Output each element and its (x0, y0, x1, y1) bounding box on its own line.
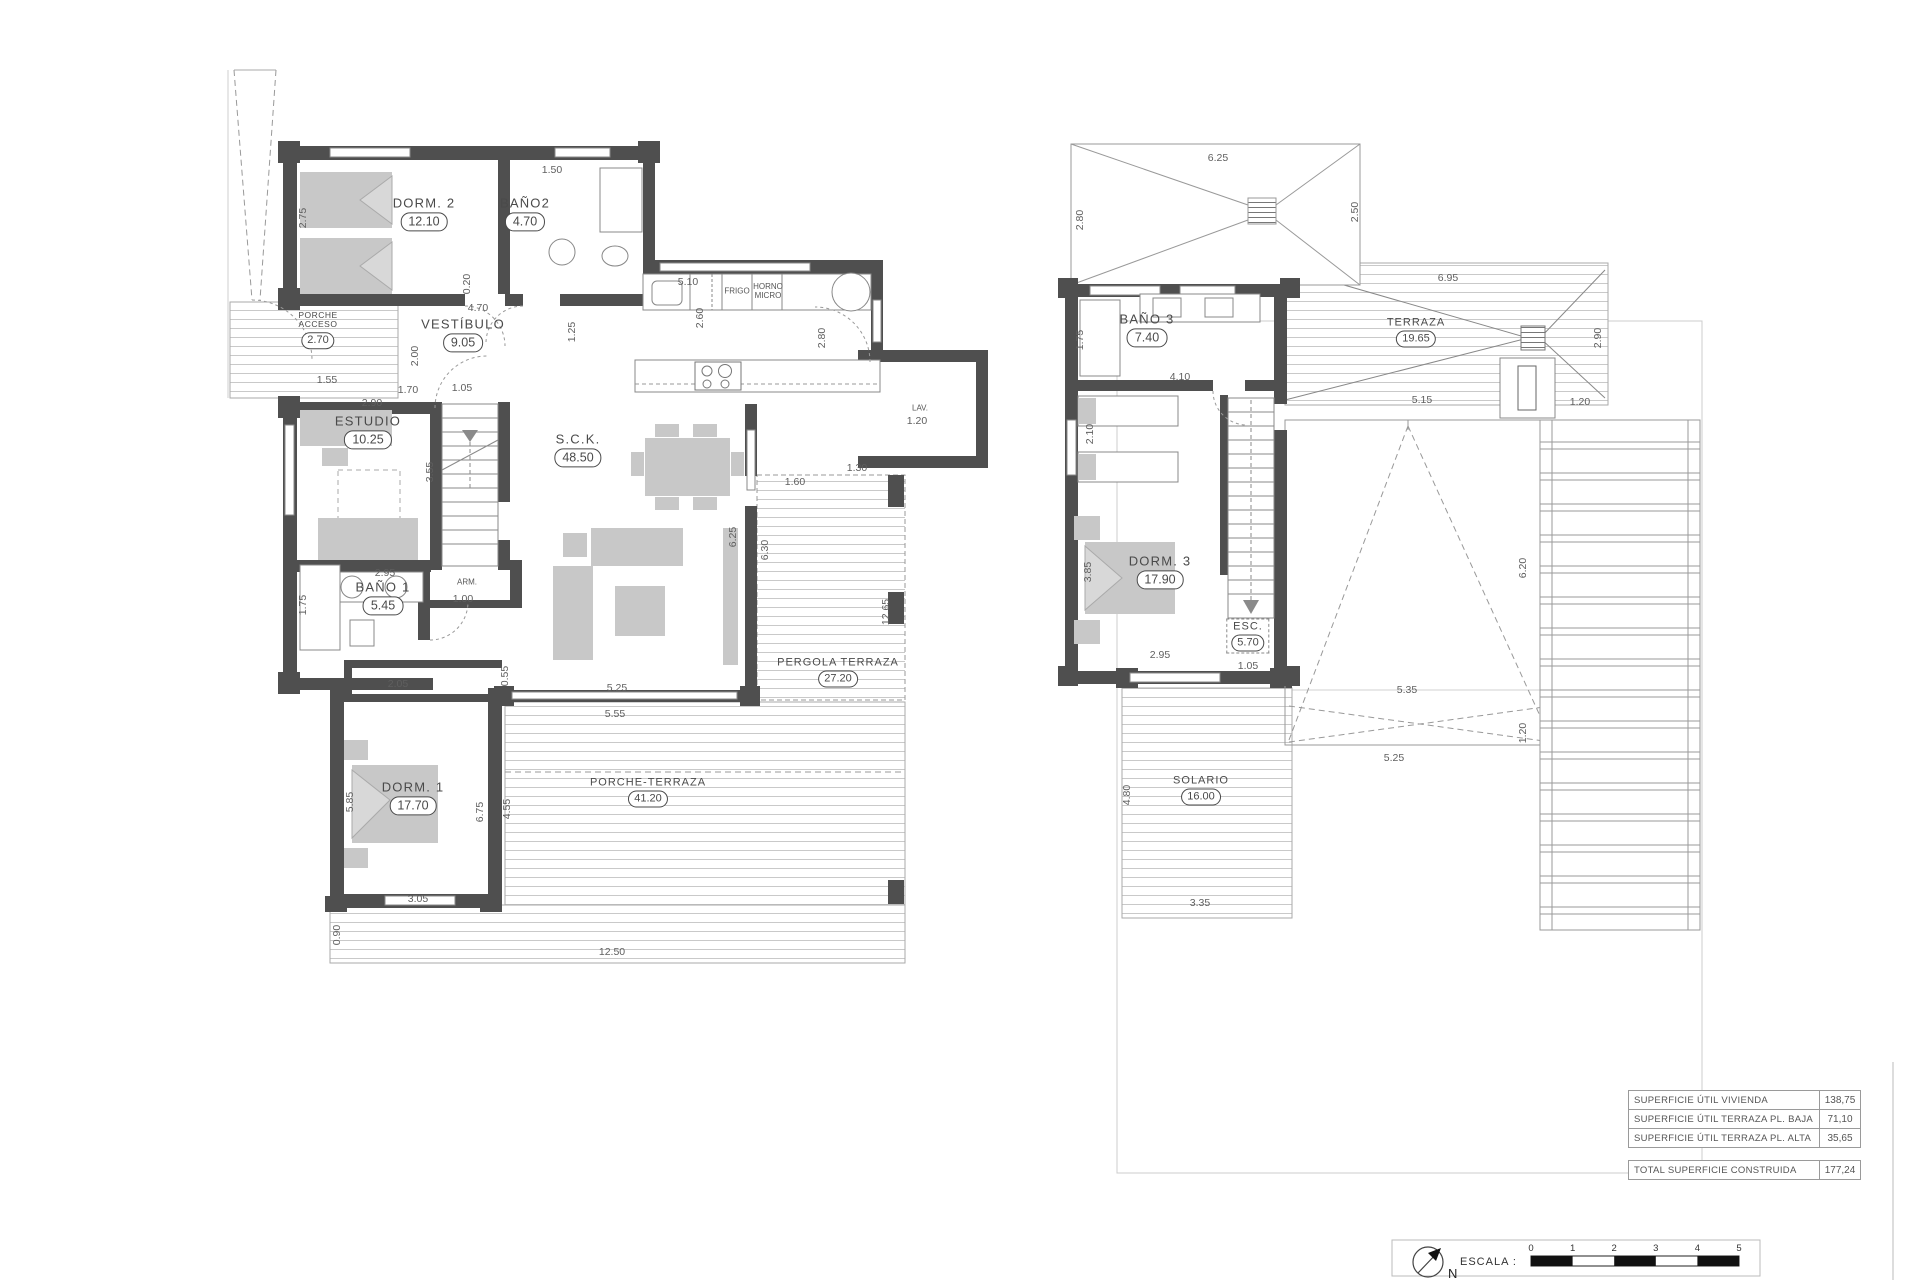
floorplan-drawing (0, 0, 1920, 1280)
room-label: ESC.5.70 (1226, 619, 1269, 654)
summary-total-row: TOTAL SUPERFICIE CONSTRUIDA177,24 (1628, 1160, 1861, 1180)
room-name: PERGOLA TERRAZA (777, 657, 899, 669)
room-area-badge: 17.90 (1136, 571, 1183, 590)
dimension-label: 1.70 (398, 384, 418, 396)
dimension-label: 2.80 (816, 328, 828, 348)
room-area-badge: 16.00 (1181, 789, 1221, 806)
room-name: BAÑO 1 (356, 580, 411, 594)
dimension-label: 3.35 (1190, 897, 1210, 909)
dimension-label: 6.25 (1208, 152, 1228, 164)
room-area-badge: 2.70 (301, 332, 334, 349)
room-area-badge: 19.65 (1396, 331, 1436, 348)
dimension-label: 3.55 (424, 462, 436, 482)
room-area-badge: 7.40 (1127, 329, 1167, 348)
floorplan-sheet: DORM. 212.10BAÑO24.70PORCHE ACCESO2.70VE… (0, 0, 1920, 1280)
room-label: BAÑO24.70 (500, 196, 550, 231)
dimension-label: 6.30 (759, 540, 771, 560)
scale-tick: 1 (1570, 1243, 1575, 1254)
upper-floor-decks (1116, 263, 1608, 918)
summary-row: SUPERFICIE ÚTIL TERRAZA PL. BAJA71,10 (1628, 1110, 1861, 1129)
dimension-label: 2.60 (694, 308, 706, 328)
room-label: BAÑO 37.40 (1120, 312, 1175, 347)
room-label: PORCHE ACCESO2.70 (298, 311, 337, 349)
summary-row-value: 138,75 (1820, 1091, 1860, 1109)
dimension-label: 4.70 (468, 302, 488, 314)
room-name: VESTÍBULO (421, 317, 505, 331)
dimension-label: 0.20 (461, 274, 473, 294)
dimension-label: 1.05 (1238, 660, 1258, 672)
scale-tick: 0 (1528, 1243, 1533, 1254)
room-area-badge: 48.50 (554, 449, 601, 468)
dimension-label: 1.20 (1517, 723, 1529, 743)
summary-row: SUPERFICIE ÚTIL VIVIENDA138,75 (1628, 1090, 1861, 1110)
room-area-badge: 27.20 (818, 671, 858, 688)
room-area-badge: 9.05 (443, 334, 483, 353)
room-name: DORM. 1 (382, 780, 445, 794)
room-label: PORCHE-TERRAZA41.20 (590, 777, 706, 808)
dimension-label: 6.95 (1438, 272, 1458, 284)
room-label: DORM. 317.90 (1129, 554, 1192, 589)
dimension-label: 2.10 (1084, 424, 1096, 444)
dimension-label: 5.25 (1384, 752, 1404, 764)
dimension-label: 2.80 (1074, 210, 1086, 230)
room-label: VESTÍBULO9.05 (421, 317, 505, 352)
room-name: SOLARIO (1173, 775, 1229, 787)
dimension-label: 2.75 (297, 208, 309, 228)
room-label: S.C.K.48.50 (554, 432, 601, 467)
summary-row-label: SUPERFICIE ÚTIL TERRAZA PL. ALTA (1629, 1129, 1820, 1147)
dimension-label: 6.75 (474, 802, 486, 822)
room-label: DORM. 212.10 (393, 196, 456, 231)
dimension-label: 0.55 (499, 666, 511, 686)
room-area-badge: 17.70 (389, 797, 436, 816)
scale-tick: 2 (1612, 1243, 1617, 1254)
dimension-label: 5.55 (605, 708, 625, 720)
dimension-label: 5.35 (1397, 684, 1417, 696)
room-name: BAÑO2 (500, 196, 550, 210)
dimension-label: 1.75 (1074, 330, 1086, 350)
room-label: PERGOLA TERRAZA27.20 (777, 657, 899, 688)
dimension-label: 2.90 (1592, 328, 1604, 348)
dimension-label: 5.25 (607, 682, 627, 694)
room-name: PORCHE-TERRAZA (590, 777, 706, 789)
dimension-label: 5.85 (344, 792, 356, 812)
room-name: S.C.K. (554, 432, 601, 446)
summary-row-label: SUPERFICIE ÚTIL VIVIENDA (1629, 1091, 1820, 1109)
summary-row: SUPERFICIE ÚTIL TERRAZA PL. ALTA35,65 (1628, 1129, 1861, 1148)
dimension-label: 2.95 (375, 567, 395, 579)
room-name: ESTUDIO (335, 414, 401, 428)
ground-floor-stairs (442, 404, 498, 566)
summary-total-label: TOTAL SUPERFICIE CONSTRUIDA (1629, 1161, 1820, 1179)
summary-table: SUPERFICIE ÚTIL VIVIENDA138,75SUPERFICIE… (1628, 1090, 1861, 1148)
dimension-label: 12.65 (880, 599, 892, 625)
room-label: ESTUDIO10.25 (335, 414, 401, 449)
room-name: PORCHE ACCESO (298, 311, 337, 330)
summary-total-value: 177,24 (1820, 1161, 1860, 1179)
north-label: N (1448, 1266, 1457, 1280)
dimension-label: 2.95 (1150, 649, 1170, 661)
room-area-badge: 10.25 (344, 431, 391, 450)
upper-floor-roofs (1071, 144, 1555, 745)
upper-floor-pergola-slats (1540, 420, 1700, 930)
dimension-label: 1.50 (542, 164, 562, 176)
dimension-label: 5.15 (1412, 394, 1432, 406)
scale-tick: 5 (1736, 1243, 1741, 1254)
dimension-label: 1.20 (907, 415, 927, 427)
room-area-badge: 4.70 (505, 213, 545, 232)
room-label: TERRAZA19.65 (1387, 317, 1445, 348)
room-area-badge: 41.20 (628, 791, 668, 808)
room-area-badge: 5.45 (363, 597, 403, 616)
room-name: BAÑO 3 (1120, 312, 1175, 326)
fixture-label: LAV. (912, 403, 928, 412)
dimension-label: 12.50 (599, 946, 625, 958)
dimension-label: 1.55 (317, 374, 337, 386)
room-name: ESC. (1231, 621, 1264, 633)
dimension-label: 1.30 (847, 462, 867, 474)
dimension-label: 2.50 (1349, 202, 1361, 222)
scale-tick: 3 (1653, 1243, 1658, 1254)
room-name: DORM. 2 (393, 196, 456, 210)
scale-tick: 4 (1695, 1243, 1700, 1254)
summary-row-value: 71,10 (1820, 1110, 1860, 1128)
dimension-label: 2.90 (362, 397, 382, 409)
compass-icon (1413, 1247, 1443, 1277)
fixture-label: HORNO MICRO (753, 282, 783, 300)
scale-bar (1531, 1256, 1739, 1266)
dimension-label: 2.00 (409, 346, 421, 366)
dimension-label: 1.75 (297, 595, 309, 615)
room-name: DORM. 3 (1129, 554, 1192, 568)
fixture-label: FRIGO (724, 286, 749, 295)
fixture-label: ARM. (457, 577, 477, 586)
room-name: TERRAZA (1387, 317, 1445, 329)
dimension-label: 3.05 (408, 893, 428, 905)
dimension-label: 1.05 (452, 382, 472, 394)
dimension-label: 3.85 (1082, 562, 1094, 582)
summary-row-value: 35,65 (1820, 1129, 1860, 1147)
room-area-badge: 5.70 (1231, 635, 1264, 652)
dimension-label: 5.10 (678, 276, 698, 288)
dimension-label: 1.00 (453, 593, 473, 605)
dimension-label: 1.25 (566, 322, 578, 342)
dimension-label: 6.20 (1517, 558, 1529, 578)
summary-row-label: SUPERFICIE ÚTIL TERRAZA PL. BAJA (1629, 1110, 1820, 1128)
dimension-label: 0.90 (331, 925, 343, 945)
dimension-label: 4.80 (1121, 785, 1133, 805)
dimension-label: 6.25 (727, 527, 739, 547)
room-label: SOLARIO16.00 (1173, 775, 1229, 806)
dimension-label: 1.60 (785, 476, 805, 488)
summary-total: TOTAL SUPERFICIE CONSTRUIDA177,24 (1628, 1160, 1861, 1180)
dimension-label: 4.10 (1170, 371, 1190, 383)
room-area-badge: 12.10 (400, 213, 447, 232)
room-label: DORM. 117.70 (382, 780, 445, 815)
scale-label: ESCALA : (1460, 1256, 1517, 1268)
dimension-label: 1.20 (1570, 396, 1590, 408)
dimension-label: 2.05 (388, 678, 408, 690)
dimension-label: 4.55 (501, 799, 513, 819)
room-label: BAÑO 15.45 (356, 580, 411, 615)
